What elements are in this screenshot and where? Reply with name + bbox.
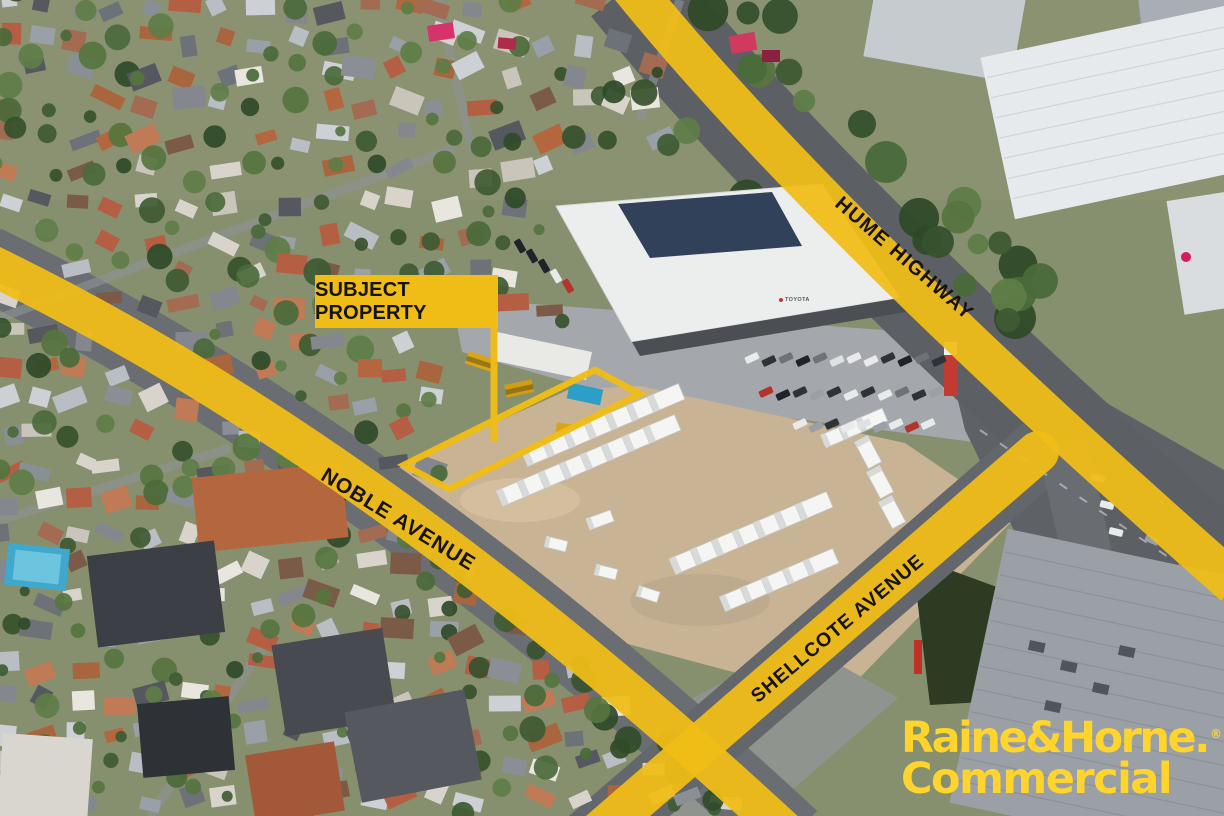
aerial-photo-canvas [0,0,1224,816]
brand-division: Commercial [901,759,1222,800]
toyota-logo-icon [779,298,783,302]
dealership-sign: TOYOTA [779,297,810,303]
brand-logo: Raine&Horne.® Commercial [901,714,1222,800]
registered-mark: ® [1210,727,1222,741]
subject-property-label: SUBJECT PROPERTY [315,275,498,328]
aerial-photo: HUME HIGHWAY NOBLE AVENUE SHELLCOTE AVEN… [0,0,1224,816]
dealership-sign-text: TOYOTA [785,297,810,303]
